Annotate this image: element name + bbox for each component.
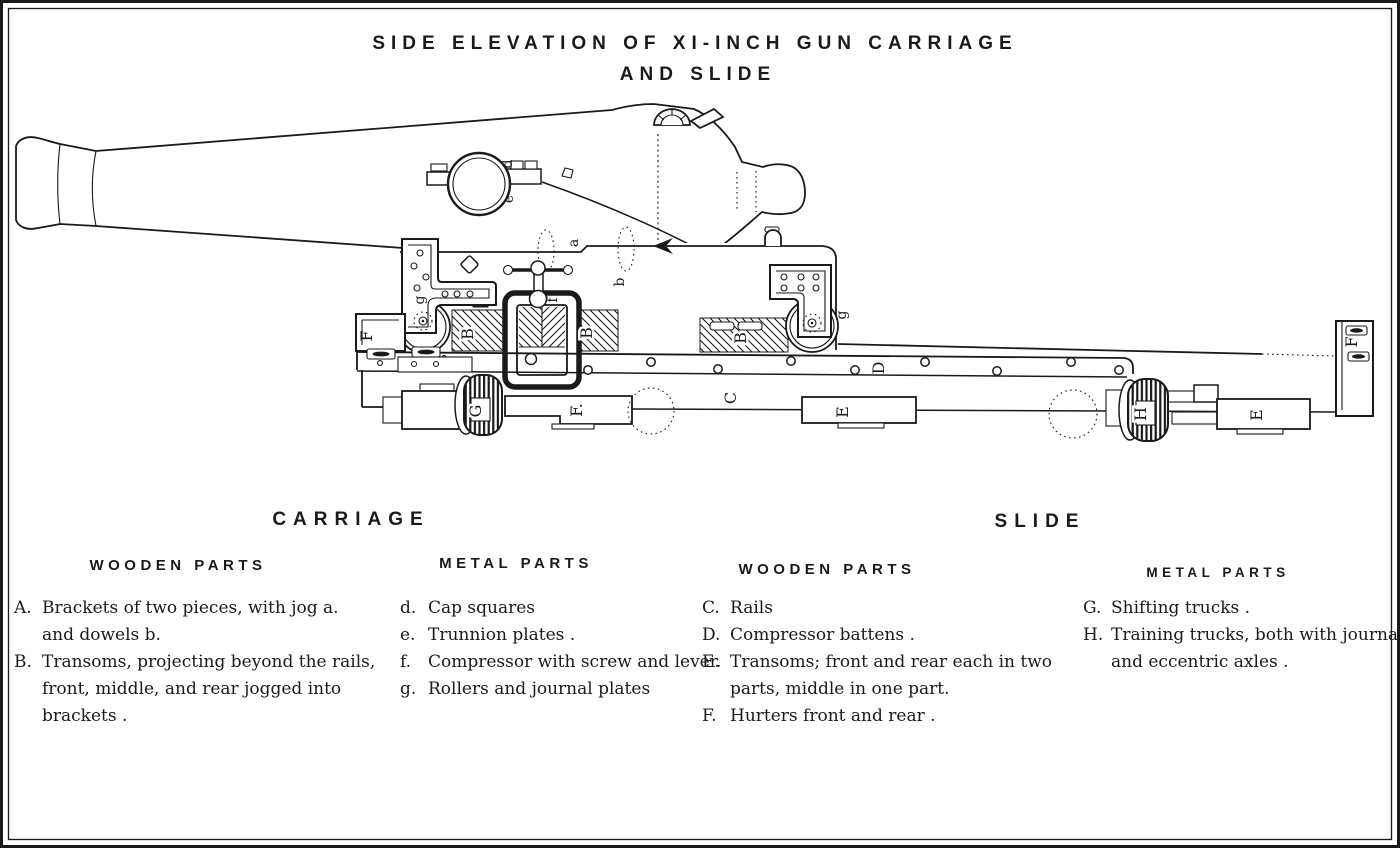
legend-line: Cap squares <box>428 598 535 618</box>
rear-journal-center <box>811 322 814 325</box>
rear-hurter: F <box>1336 321 1373 416</box>
gun-carriage-diagram: SIDE ELEVATION OF XI-INCH GUN CARRIAGE A… <box>0 0 1400 848</box>
label-a: a <box>566 239 582 247</box>
engraving-page: SIDE ELEVATION OF XI-INCH GUN CARRIAGE A… <box>0 0 1400 848</box>
ghost-circle-rear <box>1049 390 1097 438</box>
legend-key: e. <box>400 625 415 645</box>
legend-slide-wooden: C. Rails D. Compressor battens . E. Tran… <box>702 598 1052 726</box>
label-e-middle: E <box>833 406 852 418</box>
legend-line: Compressor with screw and lever. <box>428 652 721 672</box>
legend-line: Transoms, projecting beyond the rails, <box>42 652 375 672</box>
cap-square-left-bolt <box>431 164 447 171</box>
middle-transom: E <box>802 397 916 428</box>
legend-line: and dowels b. <box>42 625 161 645</box>
rear-transom: E <box>1217 399 1310 434</box>
training-truck: H <box>1106 379 1218 441</box>
legend-carriage-wooden: A. Brackets of two pieces, with jog a. a… <box>13 598 375 726</box>
label-g-front: g <box>412 295 428 304</box>
transom-slot-2 <box>738 322 762 330</box>
legend-key: g. <box>400 679 416 699</box>
front-hurter: F <box>356 314 405 351</box>
ghost-circle-front <box>628 388 674 434</box>
carriage-wooden-heading: WOODEN PARTS <box>89 557 266 574</box>
batten-bolt-holes <box>584 357 1123 375</box>
legend-key: B. <box>14 652 32 672</box>
legend-line: Compressor battens . <box>730 625 915 645</box>
slide-top-dotted <box>1262 354 1336 356</box>
legend-line: Trunnion plates . <box>428 625 575 645</box>
legend-key: A. <box>13 598 32 618</box>
front-journal-center <box>422 320 425 323</box>
legend-line: Rollers and journal plates <box>428 679 650 699</box>
slide-top-line <box>838 344 1262 354</box>
front-transom-bar: F. <box>505 396 632 429</box>
legend-line: and eccentric axles . <box>1111 652 1289 672</box>
slide-heading: SLIDE <box>995 511 1086 532</box>
legend-line: Brackets of two pieces, with jog a. <box>42 598 339 618</box>
carriage-metal-heading: METAL PARTS <box>439 555 593 572</box>
legend-line: Transoms; front and rear each in two <box>730 652 1052 672</box>
legend-key: D. <box>702 625 720 645</box>
label-h-training-truck: H <box>1131 407 1150 421</box>
label-d-batten: D <box>869 362 888 375</box>
legend-carriage-metal: d. Cap squares e. Trunnion plates . f. C… <box>400 598 721 699</box>
legend-line: Hurters front and rear . <box>730 706 936 726</box>
compressor-hatch-right <box>542 307 565 347</box>
legend-slide-metal: G. Shifting trucks . H. Training trucks,… <box>1083 598 1400 672</box>
eyebolt-icon <box>765 227 781 246</box>
legend-key: f. <box>400 652 411 672</box>
legend-line: Shifting trucks . <box>1111 598 1250 618</box>
trunnion-inner-ring <box>453 158 505 210</box>
label-b-transom-rear: B <box>731 332 750 344</box>
label-g-rear: g <box>834 310 850 319</box>
label-g-shifting-truck: G <box>466 405 485 418</box>
legend-key: d. <box>400 598 416 618</box>
legend: CARRIAGE SLIDE WOODEN PARTS METAL PARTS … <box>13 509 1400 726</box>
legend-line: parts, middle in one part. <box>730 679 950 699</box>
label-e-rear: E <box>1247 409 1266 421</box>
legend-line: brackets . <box>42 706 127 726</box>
transom-slot-1 <box>710 322 734 330</box>
legend-key: G. <box>1083 598 1101 618</box>
gun-barrel <box>16 104 805 253</box>
compressor-bolt-hole <box>526 354 537 365</box>
label-c-rails: C <box>721 392 740 404</box>
legend-line: Training trucks, both with journals <box>1111 625 1400 645</box>
shifting-truck: G <box>383 357 502 435</box>
label-f-front-hurter: F <box>357 330 376 341</box>
legend-line: front, middle, and rear jogged into <box>42 679 341 699</box>
label-f-rear-hurter: F <box>1342 336 1361 347</box>
legend-key: F. <box>702 706 717 726</box>
label-e: e <box>501 195 517 203</box>
compressor-hatch-left <box>519 307 542 347</box>
label-b-transom-front: B <box>458 328 477 340</box>
slide-wooden-heading: WOODEN PARTS <box>738 561 915 578</box>
legend-key: C. <box>702 598 720 618</box>
carriage-heading: CARRIAGE <box>272 509 429 530</box>
slide-metal-heading: METAL PARTS <box>1146 565 1289 580</box>
label-f-front-transom: F. <box>567 403 586 417</box>
legend-key: H. <box>1083 625 1103 645</box>
cap-square-bolt-2 <box>525 161 537 169</box>
label-b: b <box>612 277 628 286</box>
page-title-line1: SIDE ELEVATION OF XI-INCH GUN CARRIAGE <box>372 33 1017 54</box>
batten-top-line <box>357 352 1133 374</box>
page-title-line2: AND SLIDE <box>620 64 776 85</box>
legend-key: E. <box>702 652 720 672</box>
legend-line: Rails <box>730 598 773 618</box>
label-d: d <box>500 159 516 168</box>
label-b-transom-middle: B <box>577 327 596 339</box>
